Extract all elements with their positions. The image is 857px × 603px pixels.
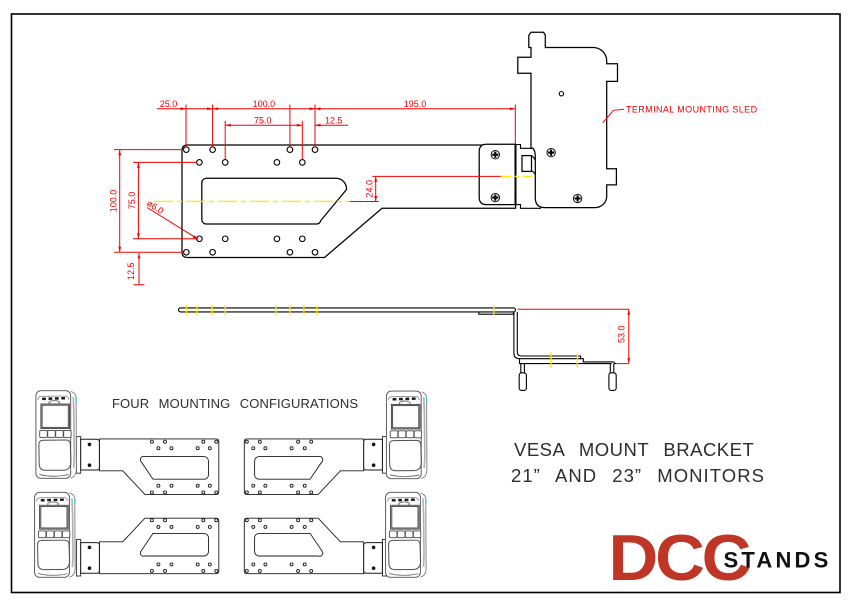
- svg-text:FOUR MOUNTING CONFIGURATIONS: FOUR MOUNTING CONFIGURATIONS: [112, 396, 358, 411]
- svg-text:75.0: 75.0: [127, 192, 137, 210]
- svg-text:TERMINAL MOUNTING SLED: TERMINAL MOUNTING SLED: [626, 105, 758, 115]
- svg-text:53.0: 53.0: [617, 325, 627, 343]
- svg-text:25.0: 25.0: [160, 99, 178, 109]
- svg-text:12.5: 12.5: [325, 115, 343, 125]
- svg-text:STANDS: STANDS: [724, 547, 832, 572]
- svg-text:12.5: 12.5: [126, 263, 136, 281]
- svg-text:195.0: 195.0: [404, 99, 427, 109]
- svg-text:100.0: 100.0: [253, 99, 276, 109]
- svg-text:21” AND 23” MONITORS: 21” AND 23” MONITORS: [511, 465, 765, 486]
- svg-text:VESA MOUNT BRACKET: VESA MOUNT BRACKET: [514, 439, 754, 460]
- svg-text:75.0: 75.0: [254, 115, 272, 125]
- svg-text:100.0: 100.0: [109, 190, 119, 213]
- svg-text:24.0: 24.0: [365, 180, 375, 198]
